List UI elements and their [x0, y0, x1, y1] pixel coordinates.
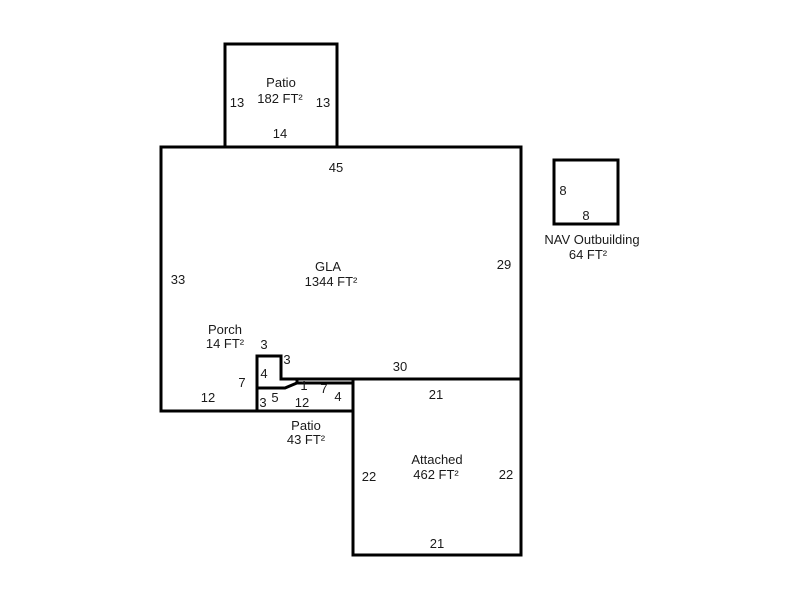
patio-top-label: Patio	[266, 75, 296, 90]
gla-dim-right: 29	[497, 257, 511, 272]
patio-bottom-area: 43 FT²	[287, 432, 326, 447]
porch-area: 14 FT²	[206, 336, 245, 351]
patio-bottom-dim-bottom: 12	[295, 395, 309, 410]
gla-dim-bottom-left: 12	[201, 390, 215, 405]
attached-dim-top: 21	[429, 387, 443, 402]
outbuilding-dim-left: 8	[559, 183, 566, 198]
patio-top-dim-bottom: 14	[273, 126, 287, 141]
outbuilding-area: 64 FT²	[569, 247, 608, 262]
attached-dim-right: 22	[499, 467, 513, 482]
floorplan-sketch: Patio 182 FT² 13 13 14 45 GLA 1344 FT² 3…	[0, 0, 800, 600]
patio-bottom-label: Patio	[291, 418, 321, 433]
patio-bottom-dim-step: 1	[300, 378, 307, 393]
patio-bottom-dim-right: 4	[334, 389, 341, 404]
outbuilding-dim-bottom: 8	[582, 208, 589, 223]
patio-bottom-dim-top-right: 7	[320, 381, 327, 396]
attached-area: 462 FT²	[413, 467, 459, 482]
outbuilding-label: NAV Outbuilding	[544, 232, 639, 247]
gla-dim-notch-right: 3	[283, 352, 290, 367]
porch-bottom-edge	[257, 383, 297, 388]
gla-dim-top: 45	[329, 160, 343, 175]
sketch-svg: Patio 182 FT² 13 13 14 45 GLA 1344 FT² 3…	[0, 0, 800, 600]
attached-label: Attached	[411, 452, 462, 467]
porch-label: Porch	[208, 322, 242, 337]
porch-dim-inner: 4	[260, 366, 267, 381]
patio-top-dim-right: 13	[316, 95, 330, 110]
gla-dim-porch-side: 7	[238, 375, 245, 390]
gla-dim-left: 33	[171, 272, 185, 287]
patio-top-dim-left: 13	[230, 95, 244, 110]
patio-bottom-dim-top-left: 5	[271, 390, 278, 405]
gla-dim-bottom-right: 30	[393, 359, 407, 374]
gla-dim-notch-top: 3	[260, 337, 267, 352]
patio-bottom-dim-left: 3	[259, 395, 266, 410]
gla-label: GLA	[315, 259, 341, 274]
attached-dim-left: 22	[362, 469, 376, 484]
patio-top-area: 182 FT²	[257, 91, 303, 106]
attached-dim-bottom: 21	[430, 536, 444, 551]
gla-area: 1344 FT²	[305, 274, 358, 289]
